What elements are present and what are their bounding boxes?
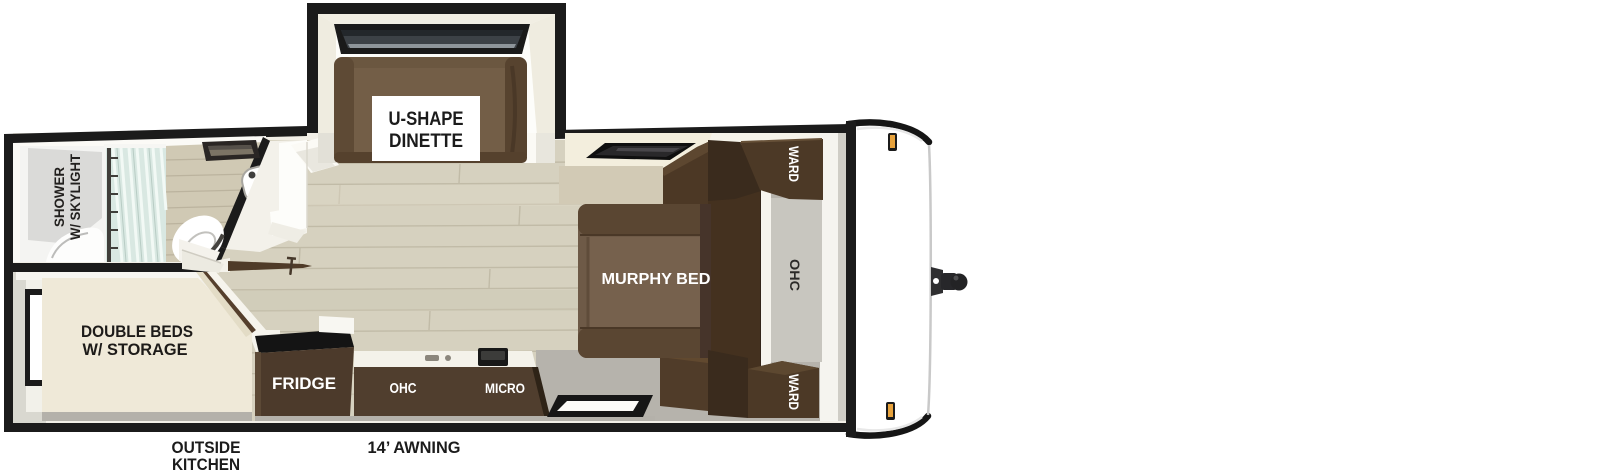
svg-text:FRIDGE: FRIDGE [272, 374, 336, 393]
svg-text:SHOWER: SHOWER [52, 167, 67, 227]
svg-text:W/ STORAGE: W/ STORAGE [83, 340, 188, 359]
svg-text:OHC: OHC [787, 259, 803, 291]
svg-text:WARD: WARD [786, 146, 801, 182]
svg-text:WARD: WARD [786, 374, 801, 410]
svg-text:14’ AWNING: 14’ AWNING [368, 438, 461, 457]
svg-text:MICRO: MICRO [485, 381, 525, 396]
svg-text:MURPHY BED: MURPHY BED [602, 271, 711, 288]
svg-text:KITCHEN: KITCHEN [172, 455, 240, 470]
svg-text:DOUBLE BEDS: DOUBLE BEDS [81, 322, 193, 341]
svg-text:OHC: OHC [390, 381, 417, 397]
svg-text:DINETTE: DINETTE [389, 131, 463, 152]
svg-text:W/ SKYLIGHT: W/ SKYLIGHT [68, 153, 83, 240]
svg-text:U-SHAPE: U-SHAPE [389, 109, 464, 130]
